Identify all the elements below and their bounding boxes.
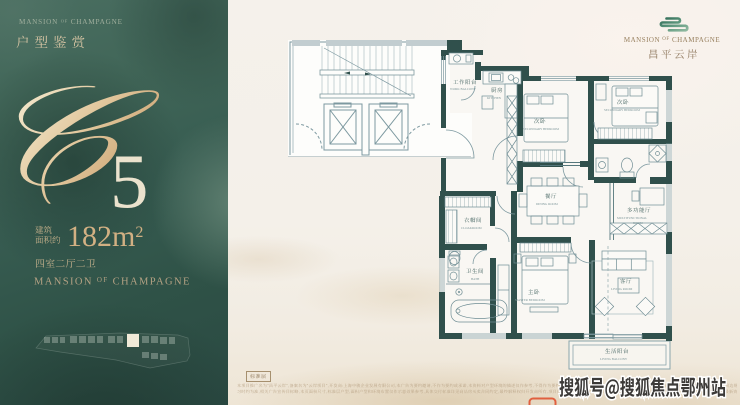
svg-text:次卧: 次卧 [617,98,629,106]
svg-text:工作阳台: 工作阳台 [453,78,477,86]
svg-text:KITCHEN: KITCHEN [487,95,502,100]
svg-text:餐厅: 餐厅 [545,192,557,200]
svg-text:WORK BALCONY: WORK BALCONY [450,86,477,91]
svg-text:ROOM: ROOM [633,220,643,225]
svg-text:LIVING ROOM: LIVING ROOM [611,286,633,291]
svg-text:SECONDARY BEDROOM: SECONDARY BEDROOM [604,107,640,112]
svg-text:BATH: BATH [471,276,480,281]
svg-text:DINING ROOM: DINING ROOM [536,201,558,206]
svg-text:卫生间: 卫生间 [466,267,484,275]
svg-text:多功能厅: 多功能厅 [627,206,651,214]
svg-text:生活阳台: 生活阳台 [605,347,629,355]
svg-text:次卧: 次卧 [534,117,546,125]
svg-text:CLOAKROOM: CLOAKROOM [461,225,482,230]
svg-text:客厅: 客厅 [620,277,632,285]
svg-text:主卧: 主卧 [528,288,540,296]
svg-text:搜狐号@搜狐焦点鄂州站: 搜狐号@搜狐焦点鄂州站 [559,372,726,402]
svg-text:衣帽间: 衣帽间 [464,216,482,224]
svg-text:MASTER BEDROOM: MASTER BEDROOM [515,297,545,302]
svg-text:LIVING BALCONY: LIVING BALCONY [600,356,628,361]
svg-text:厨房: 厨房 [491,86,503,94]
svg-text:SECONDARY BEDROOM: SECONDARY BEDROOM [523,126,559,131]
